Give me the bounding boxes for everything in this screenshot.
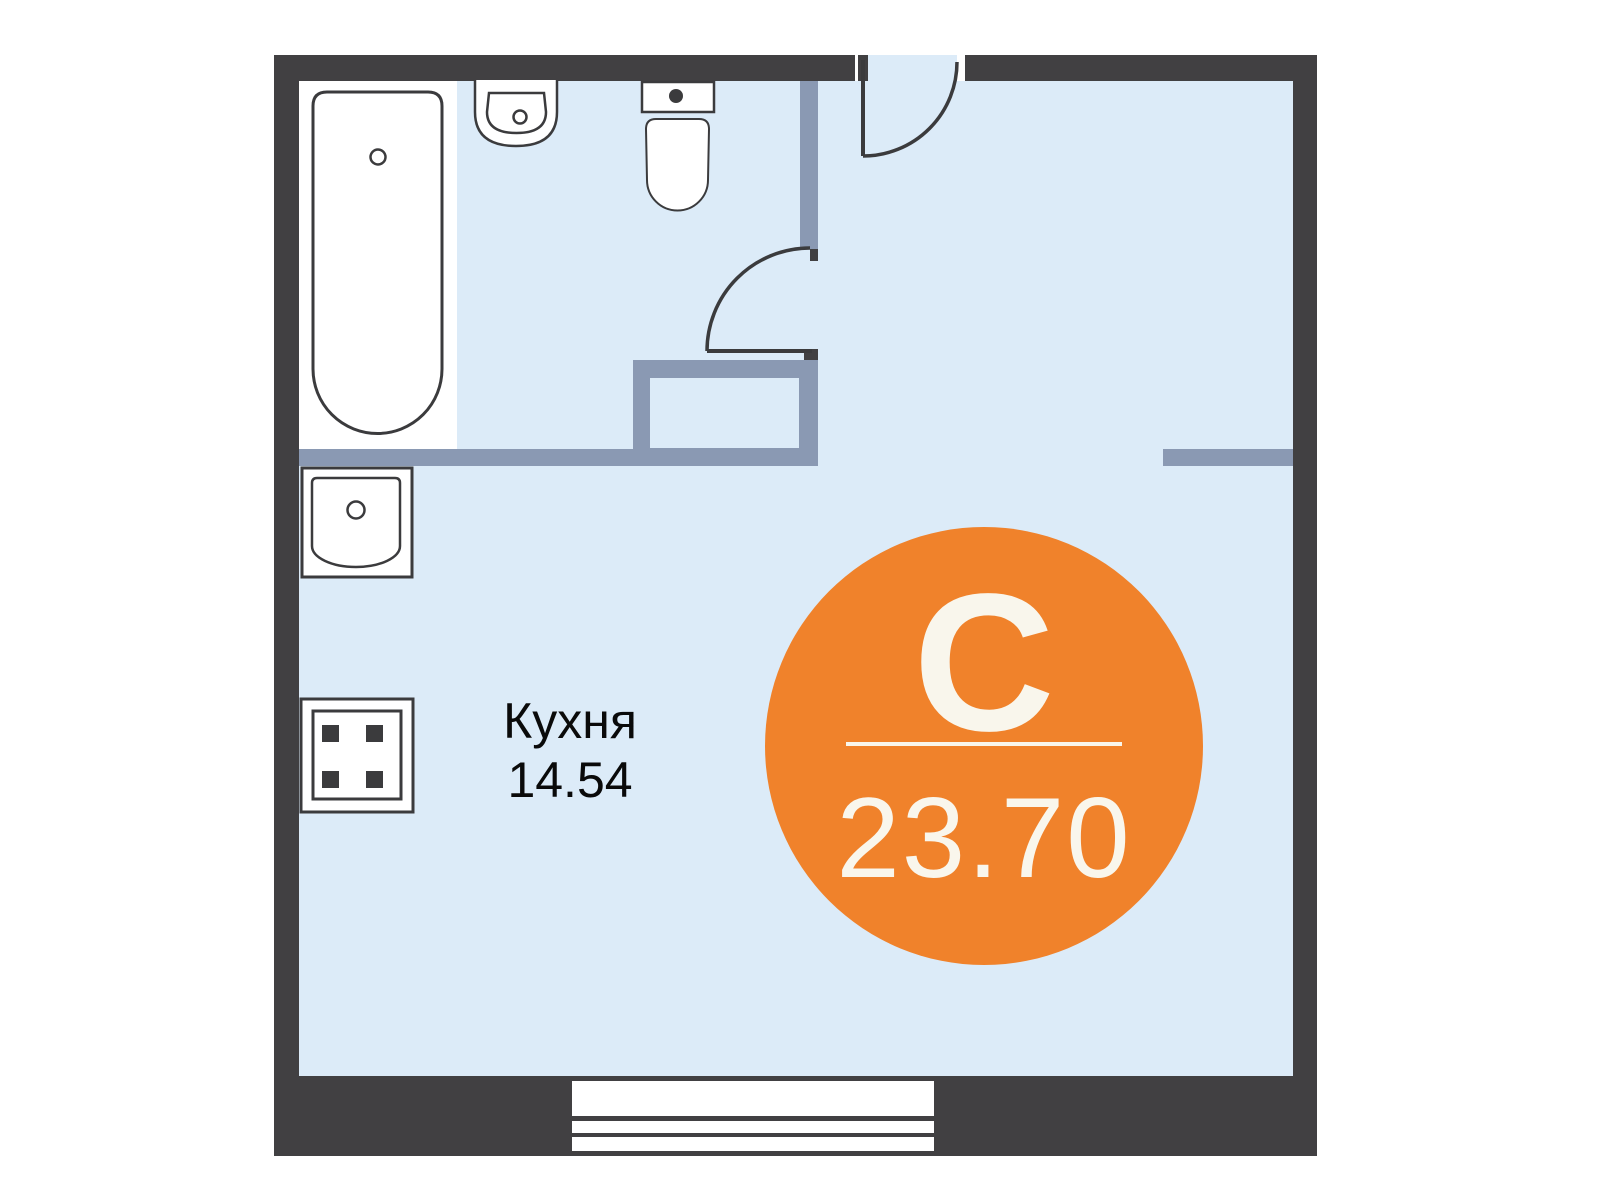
window-middle-pane <box>572 1121 934 1133</box>
bathroom-door-jamb-top <box>810 249 818 261</box>
bathroom-wall-vertical <box>800 81 818 249</box>
outer-wall-top-left <box>274 55 855 81</box>
duct-shaft-interior <box>650 378 799 448</box>
outer-wall-left <box>274 55 299 1156</box>
room-name: Кухня <box>420 692 720 751</box>
unit-badge[interactable]: С 23.70 <box>765 527 1203 965</box>
outer-wall-top-right <box>965 55 1317 81</box>
floor-plan: Кухня 14.54 С 23.70 <box>0 0 1600 1200</box>
window-outer-pane <box>572 1081 934 1116</box>
bathroom-door-jamb-bottom <box>804 349 818 360</box>
door-frame-notch-right <box>957 55 965 81</box>
outer-wall-right <box>1293 55 1317 1156</box>
room-label-kitchen: Кухня 14.54 <box>420 692 720 810</box>
room-area: 14.54 <box>420 751 720 810</box>
badge-divider-line <box>846 742 1122 746</box>
window-inner-pane <box>572 1137 934 1151</box>
unit-type-letter: С <box>765 565 1203 761</box>
hall-partition-stub <box>1163 449 1293 466</box>
entrance-door-jamb <box>858 55 868 81</box>
entrance-opening <box>868 55 957 81</box>
unit-total-area: 23.70 <box>765 782 1203 896</box>
